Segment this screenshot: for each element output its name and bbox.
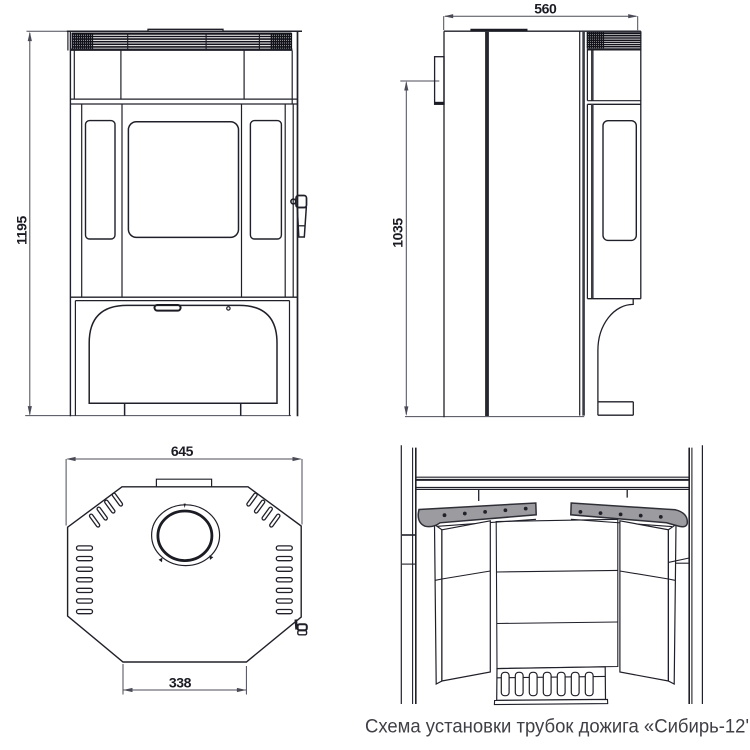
svg-text:Схема установки трубок дожига: Схема установки трубок дожига «Сибирь-12… [365, 716, 749, 738]
svg-text:338: 338 [169, 674, 192, 690]
svg-text:1035: 1035 [389, 218, 405, 248]
svg-text:645: 645 [171, 443, 194, 459]
svg-text:1195: 1195 [13, 216, 29, 245]
svg-text:560: 560 [534, 0, 557, 16]
